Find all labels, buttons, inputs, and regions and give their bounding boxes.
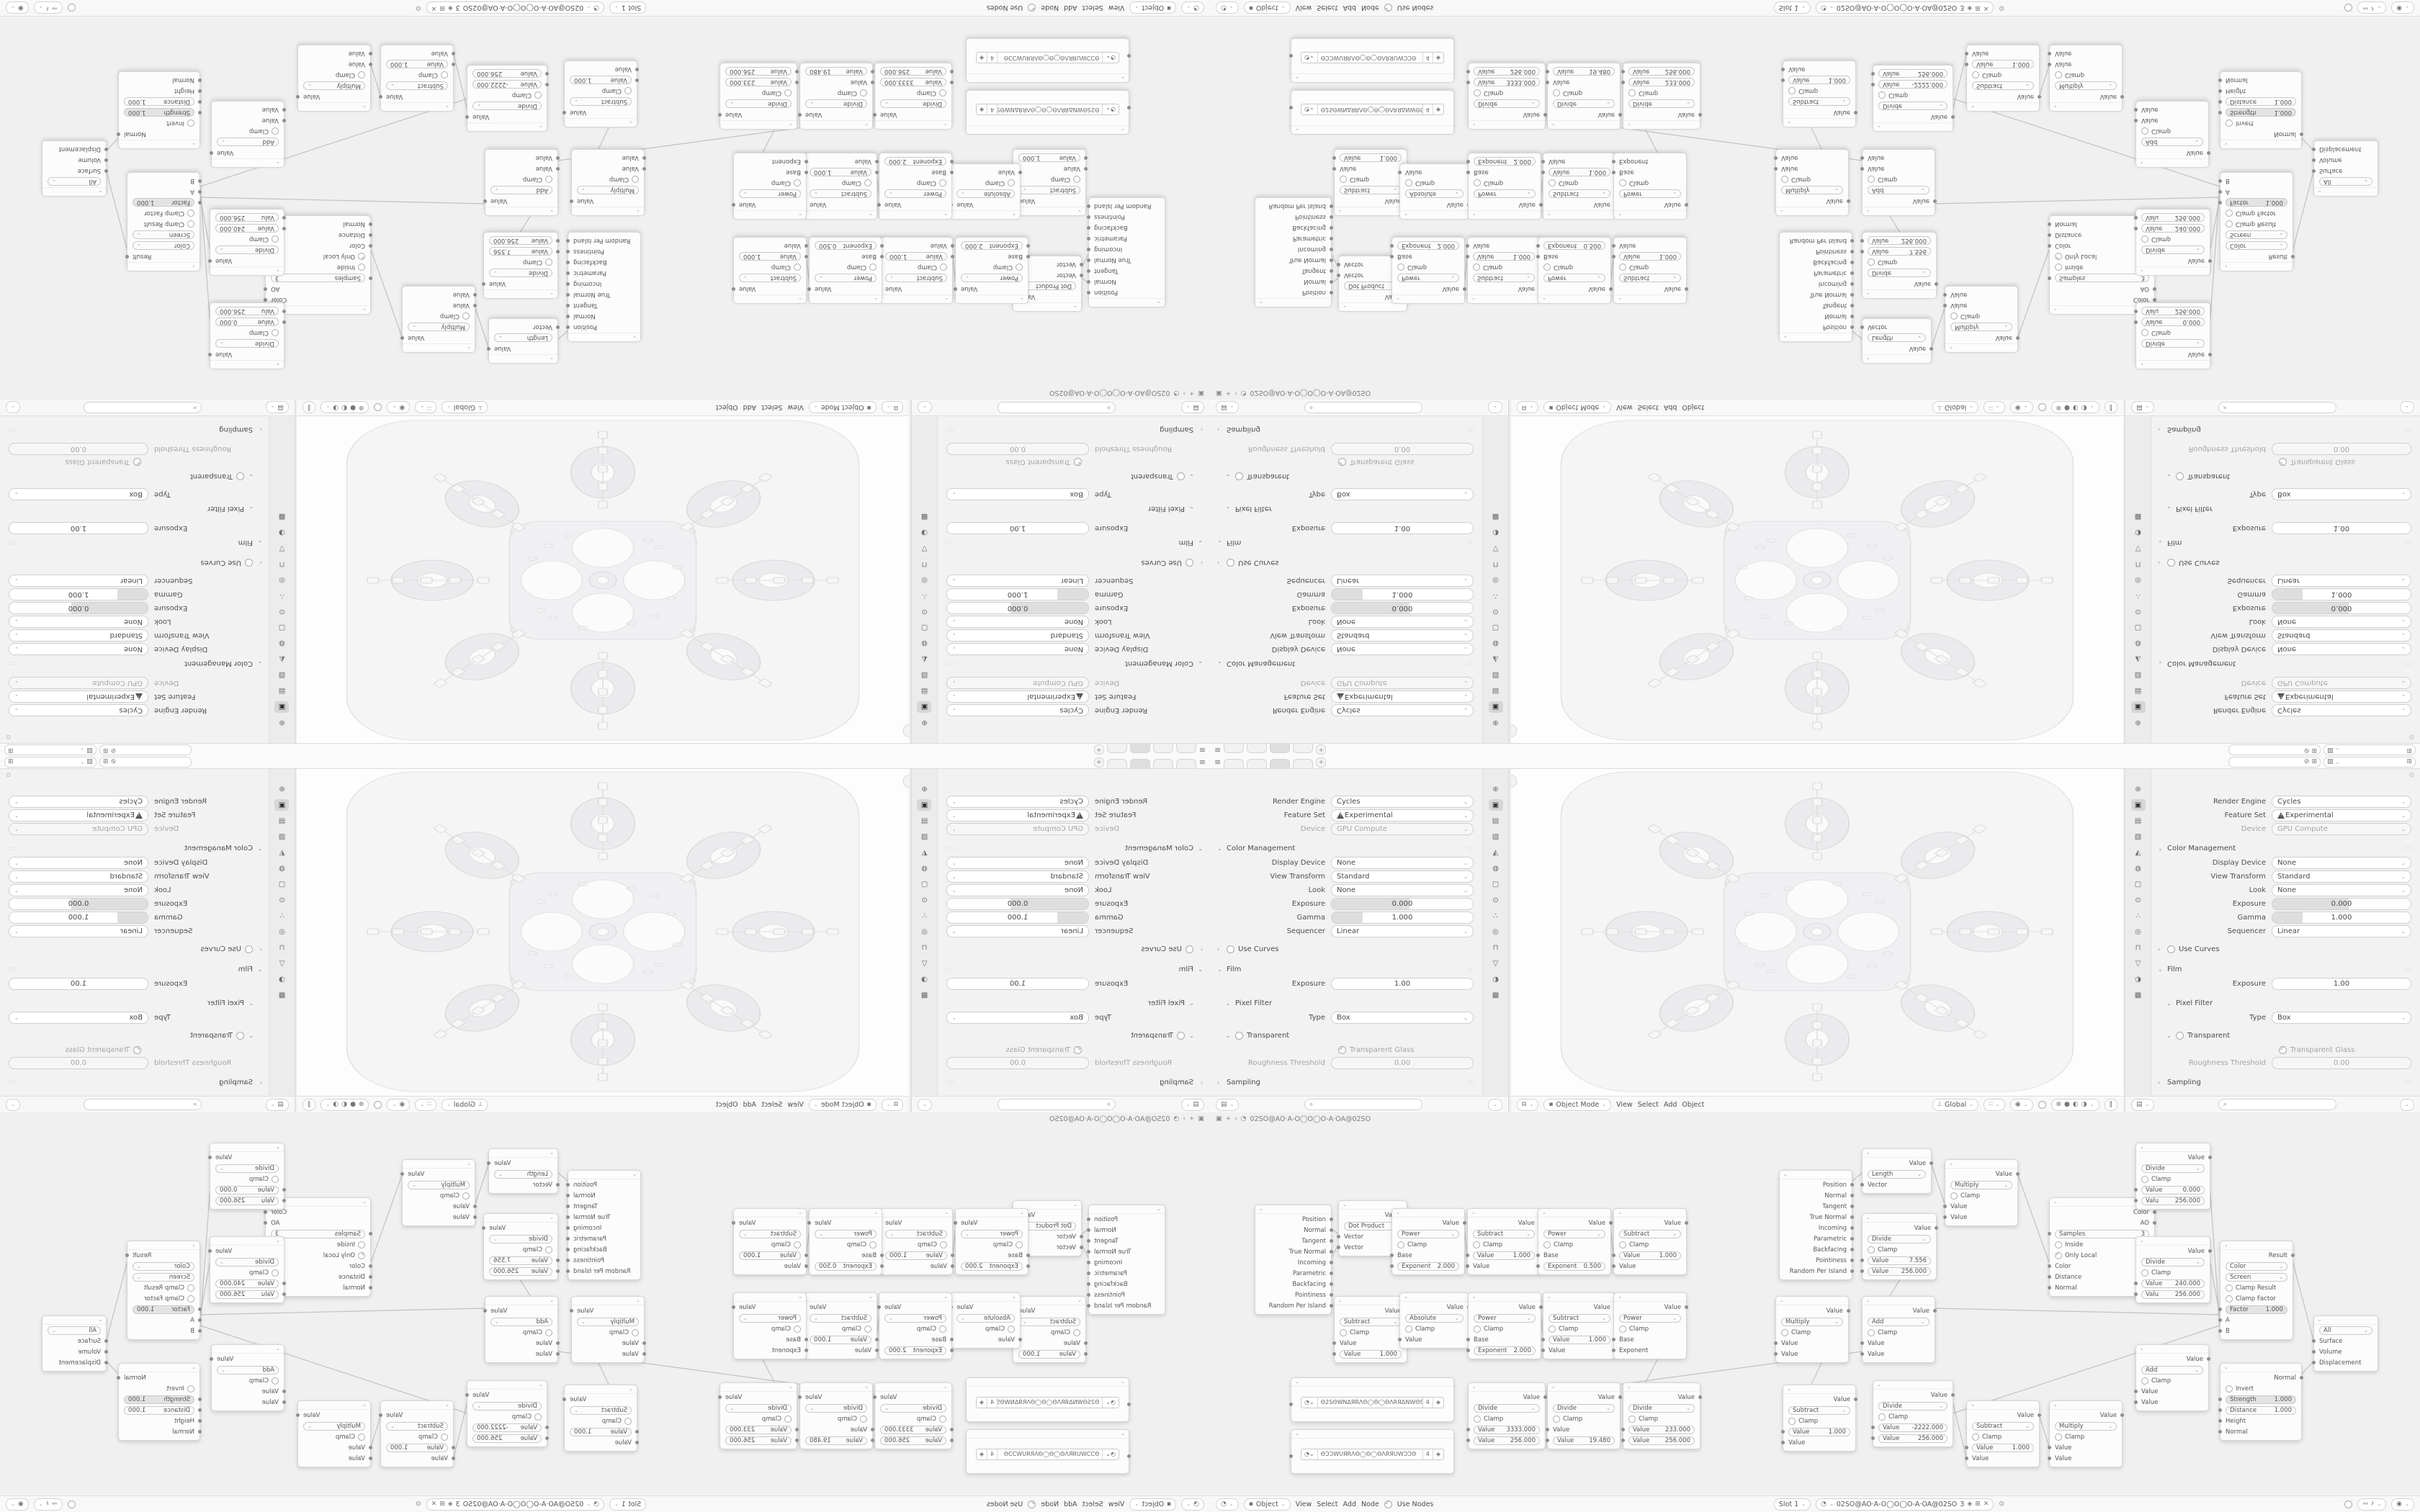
input-socket[interactable]: [104, 148, 108, 151]
collapse-icon[interactable]: ⌄: [869, 1294, 873, 1300]
material-users-count[interactable]: 3: [1960, 4, 1964, 12]
input-socket[interactable]: [104, 1339, 108, 1343]
operation-select[interactable]: Color⌄: [2226, 242, 2287, 251]
input-socket[interactable]: [1943, 1215, 1947, 1219]
input-socket[interactable]: [951, 244, 954, 248]
input-socket[interactable]: [1390, 1264, 1394, 1268]
input-socket[interactable]: [556, 1352, 560, 1356]
output-socket[interactable]: [1618, 1395, 1622, 1399]
prop-value-field[interactable]: 0.000: [9, 602, 148, 614]
input-socket[interactable]: [950, 81, 954, 84]
collapse-icon[interactable]: ⌄: [1618, 1210, 1622, 1215]
workspace-tab[interactable]: [1176, 744, 1196, 753]
tab-material-icon[interactable]: ◑: [1489, 973, 1503, 985]
prop-value-field[interactable]: 0.000: [946, 602, 1089, 614]
input-socket[interactable]: [950, 1349, 954, 1352]
value-field[interactable]: Value256.000: [880, 1436, 946, 1445]
snap-target-button[interactable]: ∷⌄: [1984, 402, 2005, 414]
tab-view-layer-icon[interactable]: ▧: [918, 670, 932, 681]
output-socket[interactable]: [125, 255, 129, 258]
section-caret-icon[interactable]: ⌄: [1197, 845, 1203, 852]
tab-view-layer-icon[interactable]: ▧: [918, 831, 932, 842]
operation-select[interactable]: Divide⌄: [1628, 1404, 1695, 1413]
operation-select[interactable]: Power⌄: [961, 1230, 1023, 1238]
node-header[interactable]: ⌄: [1469, 120, 1545, 129]
new-datablock-icon[interactable]: ⊞: [103, 747, 109, 753]
section-header-color-management[interactable]: ⌄Color Management∷∷: [0, 656, 269, 672]
clamp-checkbox[interactable]: [545, 1329, 552, 1336]
collapse-icon[interactable]: ⌄: [1627, 1384, 1631, 1390]
output-socket[interactable]: [1087, 204, 1090, 208]
clamp-checkbox[interactable]: [1073, 1329, 1080, 1336]
new-datablock-icon[interactable]: ⊞: [8, 759, 14, 765]
collapse-icon[interactable]: ⌄: [944, 1384, 948, 1390]
node-header[interactable]: ⌄: [880, 1209, 952, 1218]
menu-add[interactable]: Add: [1343, 1500, 1356, 1508]
output-socket[interactable]: [2153, 1221, 2156, 1225]
value-field[interactable]: Exponent2.000: [1474, 158, 1536, 166]
node-header[interactable]: ⌄: [210, 360, 284, 369]
clamp-checkbox[interactable]: [1628, 90, 1636, 97]
editor-type-button[interactable]: ⧉⌄: [882, 1099, 903, 1111]
value-field[interactable]: Value1.000: [1018, 154, 1080, 163]
collapse-icon[interactable]: ⌄: [1551, 1384, 1556, 1390]
tab-scene-icon[interactable]: ◭: [275, 654, 290, 665]
operation-select[interactable]: All⌄: [2319, 1326, 2372, 1335]
output-socket[interactable]: [400, 336, 404, 340]
output-socket[interactable]: [379, 95, 382, 99]
node-header[interactable]: ⌄: [1468, 294, 1540, 303]
math-node[interactable]: ⌄ValueDivide⌄ClampValue0.000Valu256.000: [210, 1143, 284, 1210]
input-socket[interactable]: [880, 244, 884, 248]
operation-select[interactable]: Divide⌄: [1474, 1404, 1540, 1413]
operation-select[interactable]: Length⌄: [1868, 1170, 1926, 1179]
section-caret-icon[interactable]: ⌄: [248, 1032, 254, 1039]
node-header[interactable]: ⌄: [879, 210, 951, 219]
tab-scene-icon[interactable]: ◭: [918, 654, 932, 665]
value-field[interactable]: Value1.000: [1788, 1428, 1850, 1436]
clamp-checkbox[interactable]: [939, 90, 946, 97]
tab-tool-icon[interactable]: ⊕: [2131, 783, 2146, 795]
toggle-section-use-curves[interactable]: ›Use Curves: [0, 555, 269, 571]
clamp-checkbox[interactable]: [1972, 72, 1979, 79]
mode-selector[interactable]: ▪Object Mode⌄: [1543, 402, 1611, 414]
section-caret-icon[interactable]: ⌄: [256, 845, 262, 852]
input-socket[interactable]: [1466, 1338, 1470, 1341]
tab-texture-icon[interactable]: ▩: [2131, 511, 2146, 523]
tab-object-icon[interactable]: ▢: [918, 878, 932, 890]
prop-value-select[interactable]: Box⌄: [2272, 1012, 2411, 1024]
clamp-checkbox[interactable]: [1878, 1413, 1886, 1421]
input-socket[interactable]: [198, 111, 202, 114]
value-field[interactable]: Value1.000: [1340, 1350, 1402, 1359]
section-enable-checkbox[interactable]: [236, 473, 244, 481]
output-socket[interactable]: [1933, 1309, 1937, 1313]
section-caret-icon[interactable]: ⌄: [1188, 1032, 1194, 1039]
material-shading-icon[interactable]: ◐: [341, 1102, 347, 1108]
input-socket[interactable]: [1860, 1341, 1864, 1345]
use-nodes-checkbox[interactable]: [1028, 4, 1036, 12]
clamp-checkbox[interactable]: [358, 1252, 365, 1259]
datablock-field[interactable]: ◔⌄ΘƆƆWUЯRΛΘ◯Θ◯ΘΛRЯUWƆƆΘ4◈: [976, 53, 1119, 64]
operation-select[interactable]: Multiply⌄: [1781, 186, 1843, 195]
input-socket[interactable]: [1541, 1349, 1545, 1352]
math-node[interactable]: ⌄ValueDivide⌄ClampValue240.000Valu256.00…: [2136, 1236, 2210, 1303]
output-socket[interactable]: [210, 151, 213, 155]
section-header-color-management[interactable]: ⌄Color Management∷∷: [1210, 840, 1482, 856]
node-header[interactable]: ⌄: [1614, 294, 1686, 303]
collapse-icon[interactable]: ⌄: [192, 142, 196, 148]
node-canvas[interactable]: ▣ + › ◔ 02SO@AO·A-O◯O◯O-A·OA@02SO ⌄Posit…: [0, 16, 1210, 400]
clamp-checkbox[interactable]: [1008, 180, 1015, 187]
collapse-icon[interactable]: ⌄: [1121, 1379, 1125, 1385]
section-enable-checkbox[interactable]: [245, 945, 253, 953]
operation-select[interactable]: Divide⌄: [472, 1402, 542, 1410]
input-socket[interactable]: [642, 167, 646, 171]
clamp-checkbox[interactable]: [864, 180, 871, 187]
collapse-icon[interactable]: ⌄: [192, 1242, 196, 1248]
fake-user-icon[interactable]: ◈: [1967, 5, 1972, 12]
output-socket[interactable]: [570, 1309, 573, 1313]
output-socket[interactable]: [1850, 271, 1854, 275]
prop-value-select[interactable]: None⌄: [1331, 616, 1474, 628]
filter-button[interactable]: ⌄: [918, 402, 932, 414]
collapse-icon[interactable]: ⌄: [1877, 125, 1881, 130]
node-header[interactable]: ⌄: [1967, 1401, 2039, 1410]
value-field[interactable]: Value233.000: [725, 78, 792, 87]
menu-add[interactable]: Add: [1064, 1500, 1077, 1508]
math-node[interactable]: ⌄ValueAdd⌄ClampValueValue: [2136, 1344, 2209, 1411]
tab-object-icon[interactable]: ▢: [918, 622, 932, 634]
node-header[interactable]: ⌄: [210, 1143, 284, 1152]
output-socket[interactable]: [1930, 347, 1933, 351]
operation-select[interactable]: Power⌄: [1619, 190, 1681, 199]
collapse-icon[interactable]: ⌄: [944, 1294, 948, 1300]
prop-value-select[interactable]: Linear⌄: [946, 575, 1089, 587]
input-socket[interactable]: [805, 1349, 808, 1352]
collapse-icon[interactable]: ⌄: [98, 189, 102, 195]
clamp-checkbox[interactable]: [2226, 1385, 2233, 1392]
operation-select[interactable]: Divide⌄: [1868, 1235, 1931, 1243]
material-users-count[interactable]: 3: [456, 1500, 460, 1508]
output-socket[interactable]: [566, 1237, 570, 1241]
datablock-name[interactable]: Θ2SΘWNΔЯRΛΘ◯Θ◯ΘΛRЯΔNWΘS2Θ: [997, 1398, 1102, 1408]
toggle-section-use-curves[interactable]: ›Use Curves: [2151, 941, 2420, 957]
input-socket[interactable]: [2134, 1188, 2138, 1192]
datablock-field[interactable]: ◔⌄Θ2SΘWNΔЯRΛΘ◯Θ◯ΘΛRЯΔNWΘS2Θ4◈: [1301, 104, 1444, 116]
collapse-icon[interactable]: ⌄: [798, 212, 802, 218]
output-socket[interactable]: [1087, 269, 1090, 273]
prop-value-select[interactable]: GPU Compute⌄: [946, 823, 1089, 835]
collapse-icon[interactable]: ⌄: [1866, 292, 1870, 297]
input-socket[interactable]: [473, 304, 477, 307]
math-node[interactable]: ⌄ValueMultiply⌄ClampValueValue: [297, 1400, 371, 1467]
output-socket[interactable]: [1330, 248, 1333, 251]
value-field[interactable]: Value1.000: [739, 253, 801, 261]
tab-modifiers-icon[interactable]: ⊙: [918, 606, 932, 618]
pin-icon[interactable]: ⊙: [1999, 5, 2004, 12]
output-socket[interactable]: [1685, 1305, 1688, 1309]
input-socket[interactable]: [369, 233, 372, 237]
math-node[interactable]: ⌄ValueMultiply⌄ClampValueValue: [402, 1159, 475, 1226]
prop-value-field[interactable]: 0.00: [946, 1057, 1089, 1069]
section-caret-icon[interactable]: ›: [256, 1079, 262, 1086]
operation-select[interactable]: Add⌄: [2141, 138, 2203, 147]
section-caret-icon[interactable]: ⌄: [1226, 506, 1232, 513]
section-header-film[interactable]: ⌄Film∷∷: [0, 961, 269, 977]
users-count[interactable]: 4: [1423, 53, 1433, 63]
input-socket[interactable]: [1289, 1454, 1293, 1458]
tab-scene-icon[interactable]: ◭: [2131, 847, 2146, 858]
value-field[interactable]: Value1.000: [1972, 60, 2034, 69]
input-socket[interactable]: [1026, 255, 1030, 258]
toggle-section-transparent[interactable]: ⌄Transparent: [0, 469, 269, 485]
input-socket[interactable]: [104, 1361, 108, 1364]
collapse-icon[interactable]: ⌄: [1866, 1215, 1870, 1220]
node-header[interactable]: ⌄: [1335, 207, 1407, 215]
output-socket[interactable]: [1698, 1395, 1702, 1399]
math-node[interactable]: ⌄ValueDivide⌄ClampValue240.000Valu256.00…: [210, 209, 284, 276]
input-socket[interactable]: [805, 244, 808, 248]
view-layer-selector[interactable]: ▨⌄ ⊞: [4, 757, 97, 768]
collapse-icon[interactable]: ⌄: [1787, 1386, 1791, 1392]
value-field[interactable]: Valu256.000: [2141, 214, 2205, 222]
output-socket[interactable]: [1685, 203, 1688, 207]
menu-add[interactable]: Add: [1664, 404, 1677, 412]
input-socket[interactable]: [369, 276, 372, 280]
tab-scene-icon[interactable]: ◭: [275, 847, 290, 858]
node-header[interactable]: ⌄: [127, 262, 200, 271]
input-socket[interactable]: [1943, 304, 1947, 307]
operation-select[interactable]: Subtract⌄: [570, 98, 632, 107]
snap-target-button[interactable]: ∷⌄: [415, 402, 436, 414]
operation-select[interactable]: Power⌄: [1474, 190, 1536, 199]
clamp-checkbox[interactable]: [784, 90, 792, 97]
section-caret-icon[interactable]: ⌄: [1217, 661, 1223, 667]
value-field[interactable]: Value7.556: [489, 248, 552, 256]
output-socket[interactable]: [264, 1210, 267, 1214]
prop-value-select[interactable]: Experimental⌄: [9, 690, 148, 703]
section-caret-icon[interactable]: ›: [256, 427, 262, 433]
input-socket[interactable]: [1080, 1235, 1083, 1238]
math-node[interactable]: ⌄ValuePower⌄ClampBaseExponent2.000: [955, 237, 1028, 304]
collapse-icon[interactable]: ⌄: [1396, 297, 1400, 302]
input-socket[interactable]: [198, 1329, 202, 1333]
material-slot-selector[interactable]: Slot 1⌄: [609, 1498, 646, 1511]
operation-select[interactable]: Subtract⌄: [386, 82, 448, 91]
value-field[interactable]: Distance1.000: [124, 1406, 194, 1415]
collapse-icon[interactable]: ⌄: [944, 1210, 949, 1215]
collapse-icon[interactable]: ⌄: [2140, 269, 2144, 274]
input-socket[interactable]: [1860, 239, 1864, 243]
node-header[interactable]: ⌄: [1863, 289, 1936, 298]
operation-select[interactable]: Power⌄: [1543, 1230, 1605, 1238]
material-icon[interactable]: ◔⌄: [1301, 105, 1318, 115]
clamp-checkbox[interactable]: [1073, 176, 1080, 184]
math-node[interactable]: ⌄ValuePower⌄ClampBaseExponent0.500: [1538, 1208, 1611, 1275]
operation-select[interactable]: Add⌄: [217, 1366, 279, 1374]
output-socket[interactable]: [2208, 1156, 2212, 1159]
math-node[interactable]: ⌄ResultColor⌄Screen⌄Clamp ResultClamp Fa…: [127, 1241, 200, 1340]
editor-type-button[interactable]: ▤⌄: [2131, 1099, 2154, 1111]
input-socket[interactable]: [1536, 1264, 1540, 1268]
input-socket[interactable]: [198, 1398, 202, 1401]
properties-search-input[interactable]: ⌕: [998, 1099, 1116, 1110]
collapse-icon[interactable]: ⌄: [629, 1386, 633, 1392]
input-socket[interactable]: [452, 1457, 455, 1460]
input-socket[interactable]: [1127, 1403, 1131, 1406]
overlay-button[interactable]: ◉⌄: [2391, 2, 2414, 14]
clamp-checkbox[interactable]: [1340, 1329, 1347, 1336]
toggle-section-use-curves[interactable]: ›Use Curves: [2151, 555, 2420, 571]
clamp-checkbox[interactable]: [534, 1413, 542, 1421]
input-socket[interactable]: [1466, 70, 1470, 73]
prop-value-select[interactable]: Experimental⌄: [2272, 809, 2411, 822]
section-header-pixel-filter[interactable]: ⌄Pixel Filter: [938, 501, 1210, 517]
node-header[interactable]: ⌄: [967, 125, 1129, 134]
node-header[interactable]: ⌄: [403, 343, 475, 352]
operation-select[interactable]: Divide⌄: [725, 100, 792, 109]
input-socket[interactable]: [880, 1254, 884, 1257]
input-socket[interactable]: [2134, 227, 2138, 230]
users-count[interactable]: 4: [1423, 1449, 1433, 1459]
filter-button[interactable]: ⌄: [2400, 1099, 2414, 1111]
input-socket[interactable]: [875, 171, 879, 174]
menu-view[interactable]: View: [787, 404, 804, 412]
value-field[interactable]: Value256.000: [725, 1436, 792, 1445]
node-header[interactable]: ⌄: [1400, 1293, 1469, 1302]
value-field[interactable]: Value240.000: [215, 1279, 279, 1288]
output-socket[interactable]: [1330, 1304, 1333, 1308]
operation-select[interactable]: Divide⌄: [2141, 1164, 2205, 1173]
node-header[interactable]: ⌄: [1863, 1214, 1936, 1223]
collapse-icon[interactable]: ⌄: [864, 122, 869, 128]
collapse-icon[interactable]: ⌄: [1877, 1382, 1881, 1387]
output-socket[interactable]: [807, 287, 811, 291]
input-socket[interactable]: [871, 1428, 874, 1431]
input-socket[interactable]: [1612, 255, 1615, 258]
clamp-checkbox[interactable]: [358, 1241, 365, 1248]
output-socket[interactable]: [2208, 353, 2212, 356]
value-field[interactable]: Value256.000: [1628, 1436, 1695, 1445]
input-socket[interactable]: [1018, 171, 1022, 174]
input-socket[interactable]: [2218, 111, 2222, 114]
output-socket[interactable]: [465, 115, 469, 119]
prop-value-field[interactable]: 0.00: [2272, 443, 2411, 455]
input-socket[interactable]: [1860, 1269, 1864, 1273]
tab-texture-icon[interactable]: ▩: [2131, 989, 2146, 1001]
output-socket[interactable]: [798, 113, 802, 117]
prop-value-select[interactable]: Box⌄: [2272, 488, 2411, 500]
checkbox-icon[interactable]: [2279, 459, 2287, 467]
math-node[interactable]: ⌄All⌄SurfaceVolumeDisplacement: [2313, 140, 2378, 197]
material-slot-selector[interactable]: Slot 1⌄: [1774, 1498, 1811, 1511]
input-socket[interactable]: [2134, 1199, 2138, 1202]
input-socket[interactable]: [642, 1341, 646, 1345]
value-field[interactable]: Factor1.000: [133, 1305, 194, 1314]
input-socket[interactable]: [1612, 1254, 1615, 1257]
menu-add[interactable]: Add: [743, 1101, 756, 1109]
wireframe-shading-icon[interactable]: ⊕: [2056, 405, 2062, 411]
math-node[interactable]: ⌄ValueDivide⌄ClampValue7.556Value256.000: [1862, 1213, 1937, 1280]
tab-world-icon[interactable]: ◍: [2131, 638, 2146, 649]
output-socket[interactable]: [566, 325, 570, 329]
toggle-section-use-curves[interactable]: ›Use Curves: [0, 941, 269, 957]
input-socket[interactable]: [1084, 156, 1088, 160]
toolbar-toggle[interactable]: [903, 724, 909, 737]
output-socket[interactable]: [1087, 215, 1090, 219]
output-socket[interactable]: [1847, 1309, 1850, 1313]
input-socket[interactable]: [2312, 1339, 2316, 1343]
section-caret-icon[interactable]: ›: [1217, 946, 1223, 953]
output-socket[interactable]: [566, 1183, 570, 1187]
collapse-icon[interactable]: ⌄: [1971, 1402, 1975, 1408]
operation-select[interactable]: Screen⌄: [2226, 231, 2287, 240]
prop-value-field[interactable]: 1.000: [2272, 588, 2411, 600]
section-header-color-management[interactable]: ⌄Color Management∷∷: [0, 840, 269, 856]
pause-render-button[interactable]: ‖: [302, 402, 316, 414]
clamp-checkbox[interactable]: [1474, 180, 1481, 187]
collapse-icon[interactable]: ⌄: [192, 1364, 196, 1370]
section-caret-icon[interactable]: ⌄: [2166, 506, 2172, 513]
fake-user-icon[interactable]: ◈: [448, 5, 453, 12]
tab-tool-icon[interactable]: ⊕: [918, 717, 932, 729]
input-socket[interactable]: [473, 1205, 477, 1208]
app-menu-icon[interactable]: ≡: [1214, 746, 1221, 754]
value-field[interactable]: Value256.000: [472, 70, 542, 78]
value-field[interactable]: Samples3: [271, 1230, 365, 1238]
output-socket[interactable]: [2120, 95, 2124, 99]
input-socket[interactable]: [1541, 171, 1545, 174]
output-socket[interactable]: [1854, 1398, 1857, 1401]
value-field[interactable]: Exponent0.500: [1543, 1262, 1605, 1271]
node-header[interactable]: ⌄: [1543, 1293, 1615, 1302]
input-socket[interactable]: [2134, 108, 2138, 112]
toggle-section-use-curves[interactable]: ›Use Curves: [1210, 941, 1482, 957]
collapse-icon[interactable]: ⌄: [1343, 305, 1347, 310]
operation-select[interactable]: Multiply⌄: [408, 1181, 470, 1189]
section-caret-icon[interactable]: ⌄: [2158, 540, 2164, 546]
input-socket[interactable]: [198, 1308, 202, 1311]
menu-object[interactable]: Object: [1682, 404, 1704, 412]
collapse-icon[interactable]: ⌄: [632, 1171, 637, 1177]
section-header-pixel-filter[interactable]: ⌄Pixel Filter: [0, 995, 269, 1011]
collapse-icon[interactable]: ⌄: [1783, 1171, 1788, 1177]
prop-value-select[interactable]: Standard⌄: [946, 870, 1089, 883]
copy-datablock-icon[interactable]: ⊞: [1975, 1501, 1981, 1508]
collapse-icon[interactable]: ⌄: [98, 1317, 102, 1323]
output-socket[interactable]: [2038, 1413, 2041, 1417]
input-socket[interactable]: [282, 108, 286, 112]
tab-output-icon[interactable]: ▤: [275, 685, 290, 697]
clamp-checkbox[interactable]: [187, 210, 194, 217]
clamp-checkbox[interactable]: [794, 1241, 801, 1248]
view-layer-selector[interactable]: ▨⌄ ⊞: [2323, 757, 2416, 768]
operation-select[interactable]: Add⌄: [2141, 1366, 2203, 1374]
input-socket[interactable]: [1860, 167, 1864, 171]
section-header-pixel-filter[interactable]: ⌄Pixel Filter: [938, 995, 1210, 1011]
output-socket[interactable]: [1330, 258, 1333, 262]
value-field[interactable]: Exponent0.500: [815, 242, 877, 251]
value-field[interactable]: Value1.000: [1549, 1336, 1610, 1344]
value-field[interactable]: Value1.000: [1473, 1251, 1535, 1260]
editor-type-button[interactable]: ◔⌄: [1216, 1498, 1239, 1511]
input-socket[interactable]: [1943, 293, 1947, 297]
output-socket[interactable]: [1087, 1228, 1090, 1232]
input-socket[interactable]: [1546, 70, 1549, 73]
collapse-icon[interactable]: ⌄: [2140, 161, 2144, 166]
clamp-checkbox[interactable]: [2226, 120, 2233, 127]
